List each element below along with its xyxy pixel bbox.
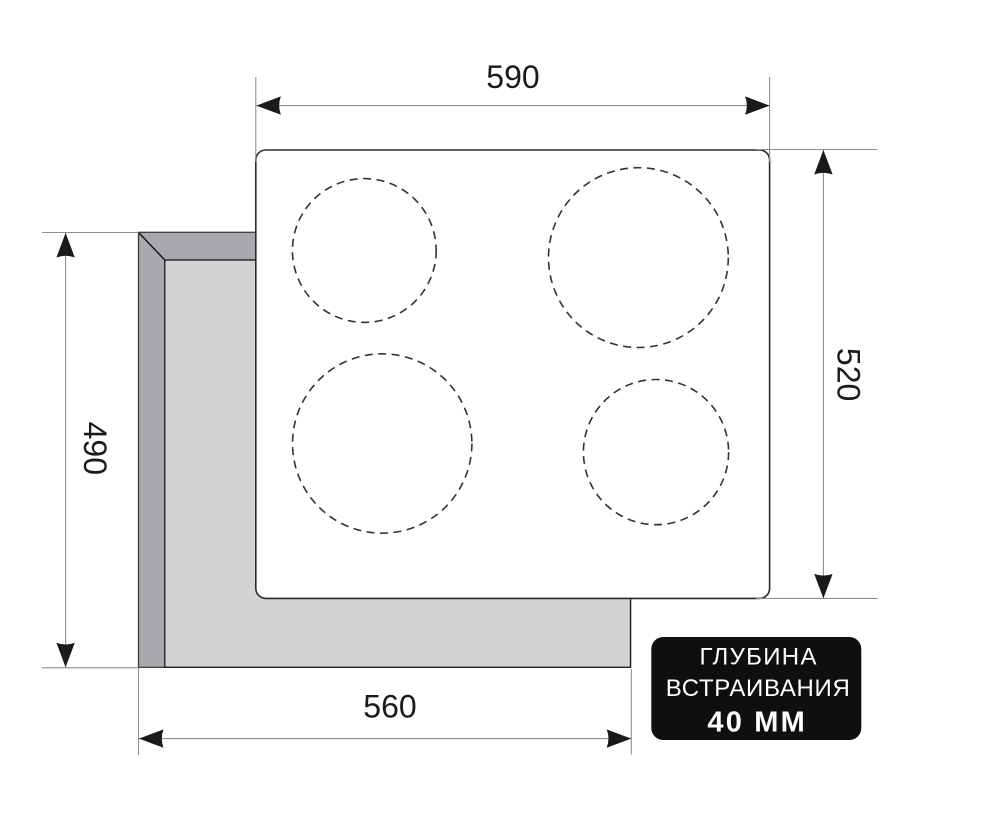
- svg-text:ВСТРАИВАНИЯ: ВСТРАИВАНИЯ: [666, 675, 850, 702]
- svg-text:490: 490: [77, 422, 113, 475]
- svg-text:40 ММ: 40 ММ: [707, 706, 805, 738]
- svg-text:560: 560: [363, 689, 416, 725]
- svg-text:ГЛУБИНА: ГЛУБИНА: [700, 644, 817, 671]
- svg-text:520: 520: [830, 348, 866, 401]
- svg-text:590: 590: [486, 59, 539, 95]
